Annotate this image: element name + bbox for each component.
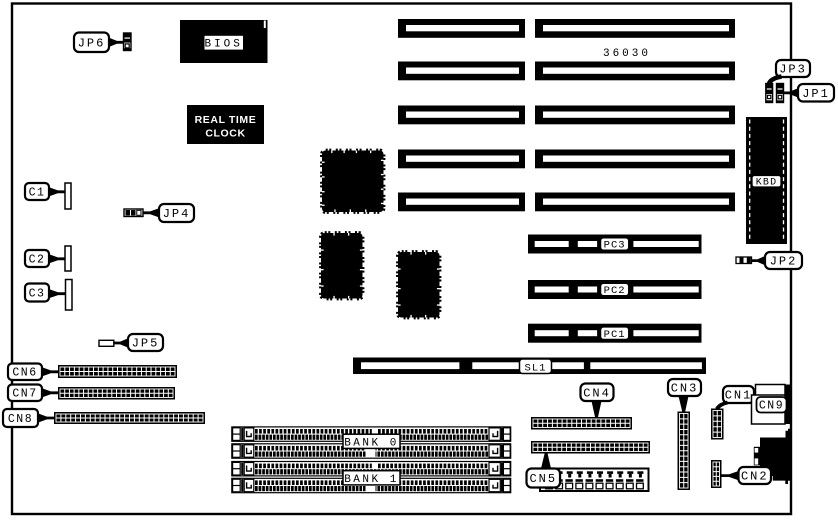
- svg-text:JP5: JP5: [132, 337, 160, 351]
- svg-text:CN6: CN6: [12, 367, 37, 380]
- svg-text:CN5: CN5: [529, 472, 557, 486]
- svg-text:CN9: CN9: [759, 400, 784, 413]
- svg-text:CN4: CN4: [583, 386, 611, 400]
- svg-text:CN8: CN8: [8, 413, 33, 426]
- svg-text:C1: C1: [29, 186, 46, 199]
- svg-text:C2: C2: [29, 253, 46, 266]
- svg-text:KBD: KBD: [756, 178, 778, 189]
- svg-text:PC3: PC3: [604, 240, 626, 252]
- svg-text:JP1: JP1: [802, 87, 830, 101]
- svg-text:CLOCK: CLOCK: [205, 128, 245, 140]
- svg-text:BANK 0: BANK 0: [344, 437, 399, 449]
- svg-text:JP4: JP4: [163, 207, 191, 221]
- svg-text:BIOS: BIOS: [204, 39, 242, 51]
- svg-text:SL1: SL1: [525, 363, 547, 375]
- svg-text:CN1: CN1: [725, 389, 753, 403]
- svg-text:JP6: JP6: [78, 36, 106, 50]
- svg-text:JP2: JP2: [770, 255, 798, 269]
- svg-text:CN7: CN7: [12, 388, 37, 401]
- svg-text:CN3: CN3: [671, 382, 699, 396]
- svg-text:36030: 36030: [603, 48, 651, 60]
- svg-text:PC2: PC2: [604, 285, 626, 297]
- svg-text:JP3: JP3: [779, 63, 807, 77]
- svg-text:REAL TIME: REAL TIME: [195, 114, 257, 126]
- svg-text:C3: C3: [29, 287, 46, 300]
- svg-text:PC1: PC1: [604, 329, 626, 341]
- svg-text:CN2: CN2: [741, 470, 769, 484]
- svg-text:BANK 1: BANK 1: [344, 474, 399, 486]
